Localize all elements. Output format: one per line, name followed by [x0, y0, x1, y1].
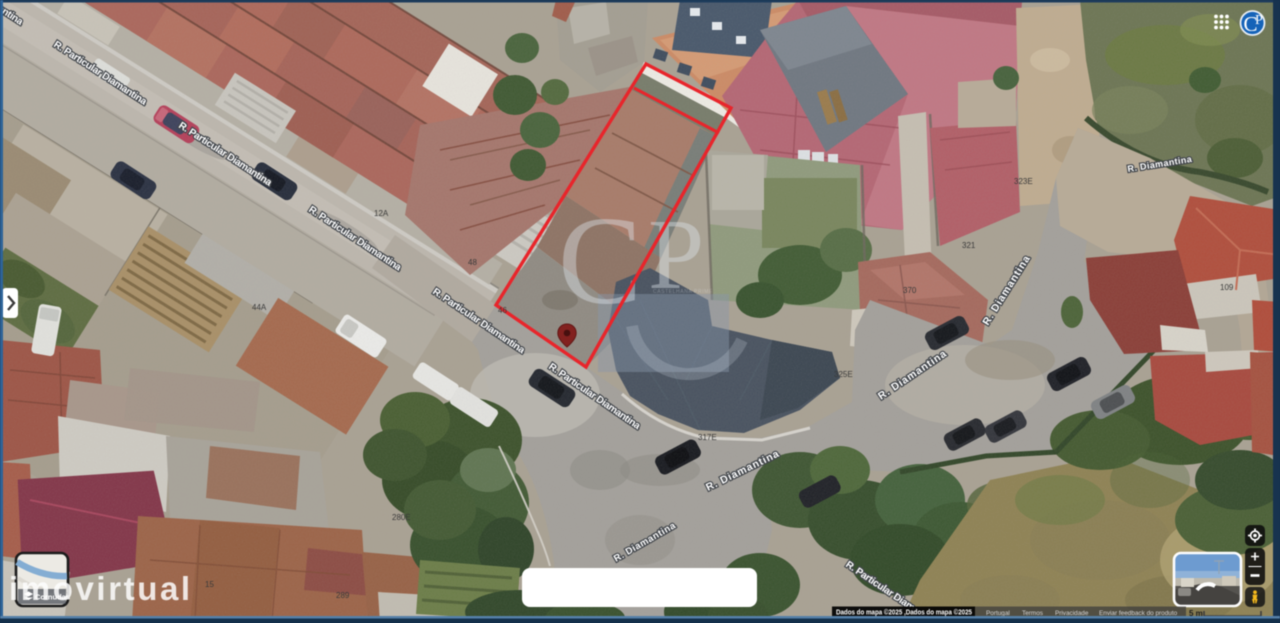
svg-text:imovirtual: imovirtual [9, 570, 193, 607]
svg-text:15: 15 [205, 580, 214, 589]
svg-text:48: 48 [468, 258, 477, 267]
svg-text:323E: 323E [1014, 177, 1033, 186]
svg-text:46: 46 [498, 306, 507, 315]
svg-text:Enviar feedback do produto: Enviar feedback do produto [1099, 610, 1178, 617]
svg-text:C: C [558, 192, 642, 331]
svg-text:317E: 317E [698, 433, 717, 442]
svg-text:325E: 325E [834, 370, 853, 379]
svg-text:321: 321 [962, 241, 976, 250]
svg-text:289: 289 [336, 591, 350, 600]
svg-text:CASTELHANA PRIME: CASTELHANA PRIME [653, 289, 713, 295]
svg-text:P: P [1255, 13, 1263, 28]
svg-text:370: 370 [903, 286, 917, 295]
svg-text:280E: 280E [392, 513, 411, 522]
svg-text:44A: 44A [252, 303, 267, 312]
svg-text:Dados do mapa ©2025 ,Dados do: Dados do mapa ©2025 ,Dados do mapa ©2025 [836, 609, 972, 617]
svg-text:12A: 12A [374, 209, 389, 218]
svg-text:Termos: Termos [1022, 610, 1043, 617]
svg-text:109: 109 [1220, 283, 1234, 292]
svg-text:Privacidade: Privacidade [1055, 610, 1089, 617]
svg-text:Portugal: Portugal [986, 610, 1010, 617]
